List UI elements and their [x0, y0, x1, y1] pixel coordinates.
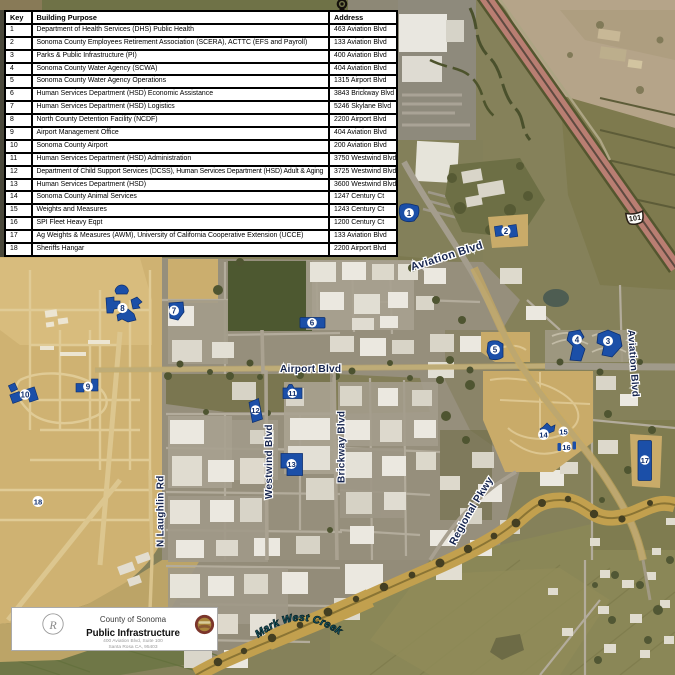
svg-text:2: 2 [504, 227, 509, 236]
svg-text:9: 9 [86, 382, 91, 391]
svg-text:15: 15 [559, 427, 568, 436]
svg-text:8: 8 [120, 304, 125, 313]
svg-text:4: 4 [575, 335, 580, 344]
svg-text:12: 12 [251, 406, 259, 415]
svg-text:Airport Blvd: Airport Blvd [280, 364, 341, 375]
svg-text:11: 11 [288, 389, 297, 398]
svg-text:Brickway Blvd: Brickway Blvd [337, 411, 348, 483]
svg-text:1: 1 [407, 209, 412, 218]
svg-text:14: 14 [539, 430, 548, 439]
svg-text:13: 13 [287, 460, 295, 469]
svg-text:101: 101 [628, 213, 642, 224]
svg-text:10: 10 [21, 390, 30, 399]
svg-text:Westwind Blvd: Westwind Blvd [264, 424, 275, 499]
svg-text:5: 5 [493, 345, 498, 354]
svg-text:18: 18 [34, 497, 42, 506]
svg-text:16: 16 [562, 443, 570, 452]
svg-text:6: 6 [310, 319, 315, 328]
svg-text:17: 17 [641, 456, 649, 465]
svg-text:7: 7 [172, 306, 177, 315]
svg-text:3: 3 [606, 337, 611, 346]
svg-text:N Laughlin Rd: N Laughlin Rd [156, 475, 167, 547]
